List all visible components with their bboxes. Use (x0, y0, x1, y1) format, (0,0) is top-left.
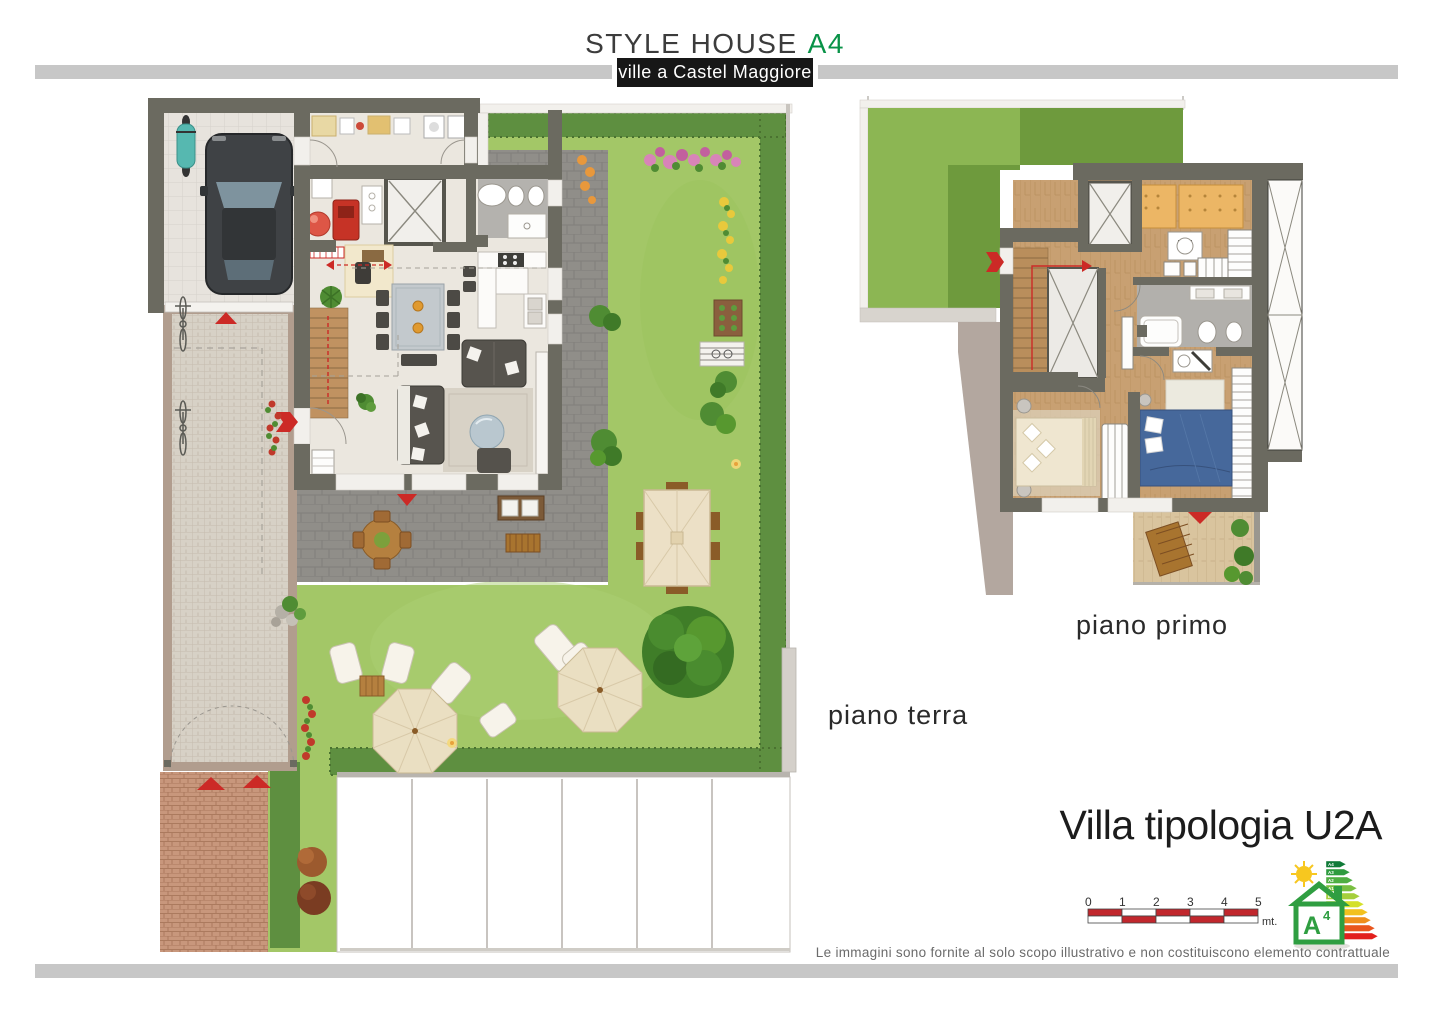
scale-tick-3: 3 (1187, 895, 1194, 909)
scale-tick-4: 4 (1221, 895, 1228, 909)
roof-edge-left (860, 108, 868, 308)
header-rule-left (35, 65, 612, 79)
energy-class-exponent: 4 (1323, 908, 1331, 923)
elevator (386, 178, 444, 244)
footer-rule (35, 964, 1398, 978)
roof-ledge (860, 308, 996, 322)
scale-tick-1: 1 (1119, 895, 1126, 909)
first-floor-plan (850, 90, 1320, 600)
first-stairs (1013, 248, 1098, 378)
brand-title: STYLE HOUSEA4 (565, 28, 865, 60)
first-elevator (1088, 182, 1132, 246)
roof-edge-strip (860, 100, 1185, 108)
bar-label-a3: A3 (1328, 870, 1334, 875)
car (200, 134, 298, 294)
floorplan-sheet: STYLE HOUSEA4 ville a Castel Maggiore (0, 0, 1440, 1017)
scale-bar: 0 1 2 3 4 5 mt. (1078, 894, 1288, 936)
scale-unit: mt. (1262, 916, 1277, 928)
gazebo (636, 482, 720, 594)
disclaimer-text: Le immagini sono fornite al solo scopo i… (816, 945, 1390, 960)
terrace (1133, 512, 1260, 585)
parking-stalls (337, 772, 790, 952)
brick-forecourt (160, 772, 271, 952)
villa-title: Villa tipologia U2A (1059, 802, 1382, 849)
bar-label-a2: A2 (1328, 878, 1334, 883)
scale-tick-2: 2 (1153, 895, 1160, 909)
energy-class-letter: A (1303, 912, 1321, 940)
void-shaft (1268, 180, 1302, 450)
bar-label-a4: A4 (1328, 862, 1334, 867)
big-tree (642, 606, 734, 698)
ground-floor-plan (140, 90, 800, 965)
ground-floor-label: piano terra (828, 700, 968, 731)
energy-house-icon: A 4 (1288, 881, 1350, 950)
bedroom-left (1012, 399, 1100, 497)
header-rule-right (818, 65, 1398, 79)
scale-tick-5: 5 (1255, 895, 1262, 909)
brand-subtitle: ville a Castel Maggiore (617, 58, 813, 87)
energy-class-badge: A4 A3 A2 A1 B C D E F G A 4 (1286, 858, 1396, 952)
sun-icon (1291, 861, 1317, 887)
driveway (163, 305, 297, 771)
brand-title-text: STYLE HOUSE (585, 28, 798, 59)
brand-title-badge: A4 (808, 28, 845, 59)
first-floor-label: piano primo (1076, 610, 1228, 641)
scale-tick-0: 0 (1085, 895, 1092, 909)
